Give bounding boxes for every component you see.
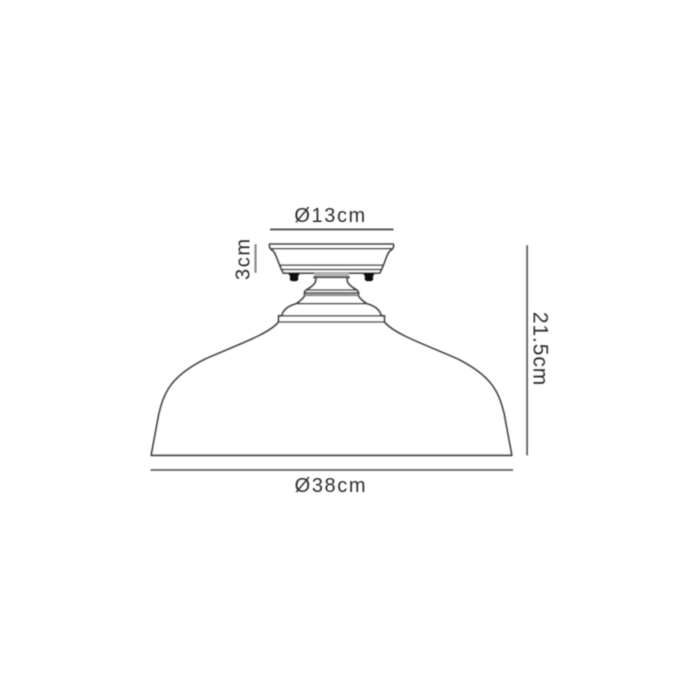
svg-text:Ø38cm: Ø38cm — [295, 475, 367, 497]
svg-text:21.5cm: 21.5cm — [529, 312, 552, 386]
svg-text:Ø13cm: Ø13cm — [294, 205, 366, 227]
svg-text:3cm: 3cm — [232, 237, 254, 280]
